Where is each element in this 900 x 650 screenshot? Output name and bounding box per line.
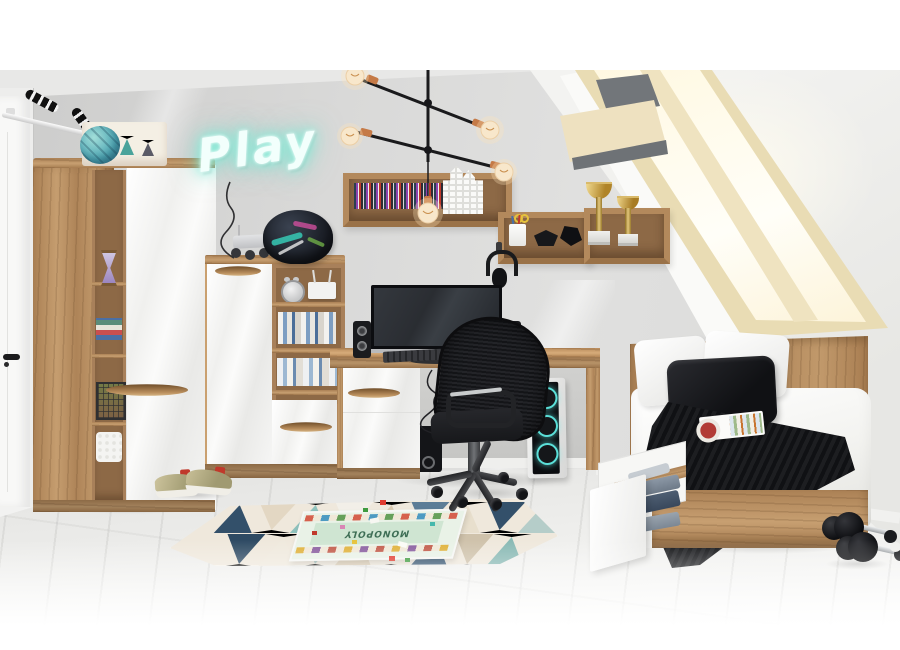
room: MONOPOLY [0, 70, 900, 650]
chandelier-pivot [424, 99, 432, 107]
chair-wheel [431, 486, 443, 498]
speaker-cone [357, 341, 367, 351]
chair-wheel [516, 488, 528, 500]
sneaker-right [185, 466, 233, 498]
chair-wheel [498, 472, 509, 483]
chair-wheel [456, 496, 468, 508]
chair-wheel [490, 498, 502, 510]
floor-fade [0, 540, 900, 650]
chandelier-pivot [424, 146, 432, 154]
magazine-pages [729, 413, 763, 436]
neon-cable [221, 182, 234, 258]
speaker-left [353, 321, 371, 358]
speaker-cone [357, 326, 367, 336]
top-margin [0, 0, 900, 70]
showroom-photo: MONOPOLY [0, 0, 900, 650]
